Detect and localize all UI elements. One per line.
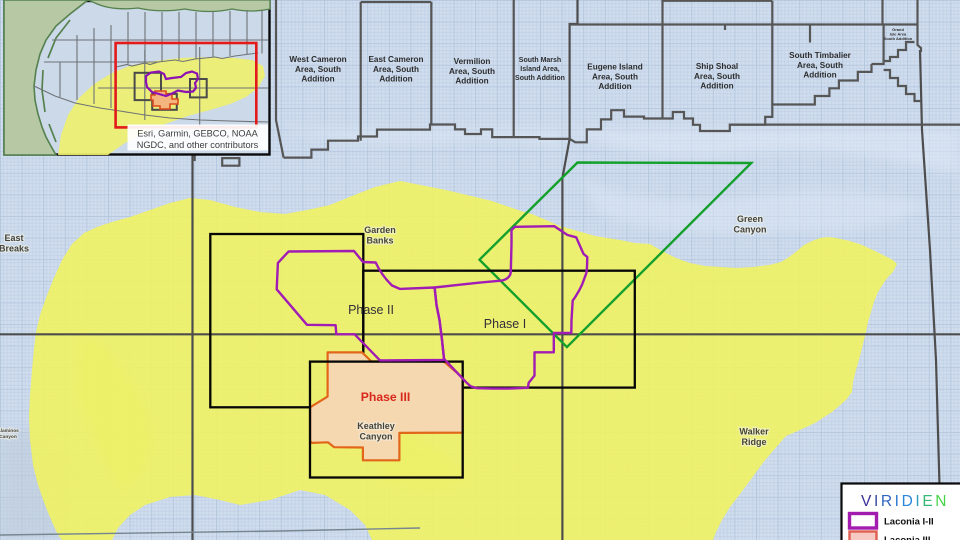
svg-text:Ship ShoalArea, SouthAddition: Ship ShoalArea, SouthAddition: [694, 62, 740, 91]
svg-text:VIRIDIEN: VIRIDIEN: [861, 493, 949, 510]
svg-text:Laconia I-II: Laconia I-II: [884, 517, 934, 528]
svg-text:VermilionArea, SouthAddition: VermilionArea, SouthAddition: [449, 57, 495, 86]
svg-text:Phase III: Phase III: [361, 390, 410, 404]
svg-text:WalkerRidge: WalkerRidge: [739, 427, 769, 448]
svg-text:Phase I: Phase I: [484, 317, 526, 331]
svg-text:South MarshIsland Area,South A: South MarshIsland Area,South Addition: [515, 57, 565, 82]
svg-text:Laconia III: Laconia III: [884, 535, 930, 540]
svg-text:Phase II: Phase II: [348, 303, 394, 317]
svg-text:Esri, Garmin, GEBCO, NOAANGDC,: Esri, Garmin, GEBCO, NOAANGDC, and other…: [137, 128, 259, 150]
svg-text:KeathleyCanyon: KeathleyCanyon: [357, 421, 395, 442]
svg-text:GardenBanks: GardenBanks: [364, 225, 396, 246]
svg-text:GreenCanyon: GreenCanyon: [733, 214, 766, 235]
